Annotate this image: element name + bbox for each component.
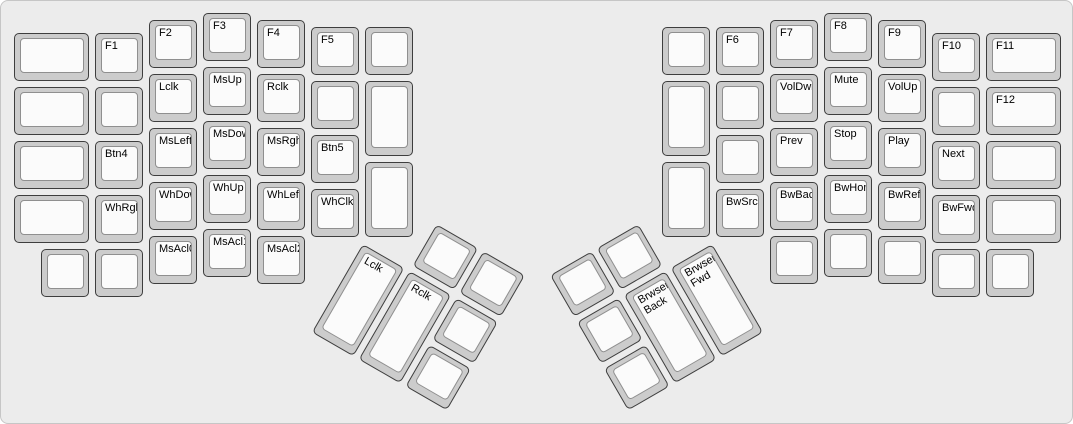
keycap-top [604, 231, 654, 280]
keycap-top [611, 351, 661, 400]
keycap-label [559, 259, 606, 305]
keycap-top [557, 258, 607, 307]
keyboard-case: F1F2F3F4F5LclkMsUpRclkBtn4MsLeftMsDownMs… [0, 0, 1073, 424]
keyboard-render: F1F2F3F4F5LclkMsUpRclkBtn4MsLeftMsDownMs… [0, 0, 1073, 424]
keycap-label [586, 306, 633, 352]
keycap-top [584, 304, 634, 353]
keycap-label [613, 353, 660, 399]
keycap-label [606, 232, 653, 278]
